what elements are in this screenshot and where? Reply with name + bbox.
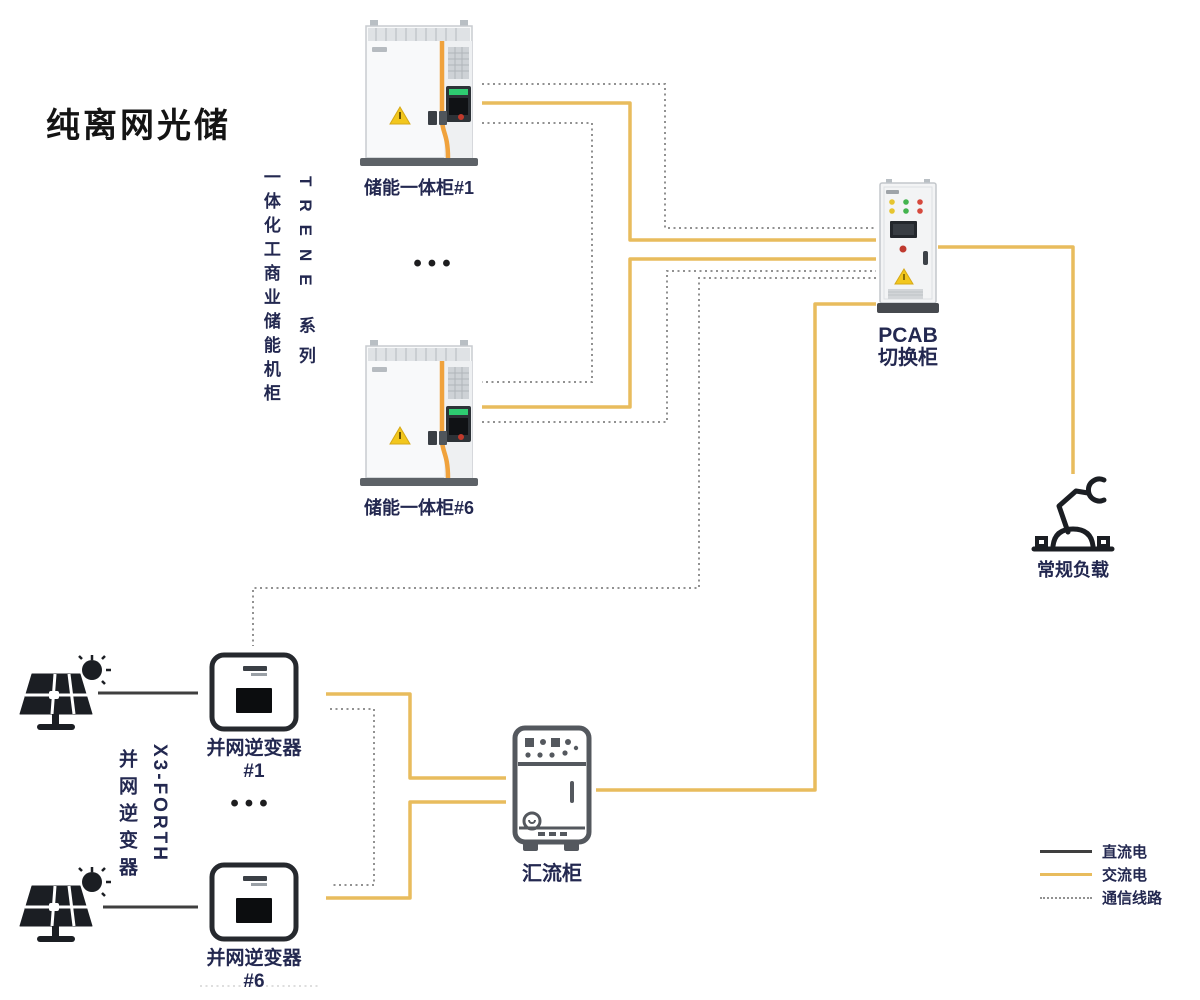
inverter-logo (243, 666, 267, 671)
comm-line-sample (1040, 897, 1092, 899)
combiner-label: 汇流柜 (510, 862, 594, 886)
legend-ac-label: 交流电 (1102, 864, 1147, 885)
storage-cabinet-6-icon (356, 336, 482, 488)
solar-panel-1-icon (16, 652, 112, 742)
storage-cabinet-6-label: 储能一体柜#6 (356, 498, 482, 520)
load-label: 常规负载 (1028, 560, 1118, 582)
legend-item-ac: 交流电 (1040, 863, 1162, 886)
inverter-6-label: 并网逆变器#6 (196, 948, 312, 994)
pcab-label-line2: 切换柜 (856, 347, 960, 370)
comm-line-cabinet1-to-cabinet6 (482, 123, 592, 382)
comm-line-inverter1-to-inverter6 (330, 709, 374, 885)
inverter-1-label: 并网逆变器#1 (196, 738, 312, 784)
storage-series-description-vertical: 一体化工商业储能机柜 (261, 168, 279, 408)
comm-line-pcab-to-inverter1 (253, 278, 876, 646)
pcab-label: PCAB 切换柜 (856, 324, 960, 370)
wiring-layer (0, 0, 1200, 1000)
storage-cabinet-1-icon (356, 16, 482, 168)
storage-cabinet-1-label: 储能一体柜#1 (356, 178, 482, 200)
legend-comm-label: 通信线路 (1102, 887, 1162, 908)
ac-line-sample (1040, 873, 1092, 876)
legend-item-comm: 通信线路 (1040, 886, 1162, 909)
ac-line-inverter6-to-combiner (326, 802, 506, 898)
storage-more-units-ellipsis: ••• (403, 250, 467, 278)
ac-line-inverter1-to-combiner (326, 694, 506, 778)
dc-line-sample (1040, 850, 1092, 853)
ac-line-cabinet6-to-pcab (482, 259, 876, 407)
solar-panel-2-icon (16, 864, 112, 954)
inverter-series-name-vertical: X3-FORTH (149, 744, 169, 863)
pcab-cabinet-icon (876, 177, 940, 315)
pv-more-units-ellipsis: ••• (220, 790, 284, 818)
ac-line-combiner-to-pcab (596, 304, 876, 790)
combiner-cabinet-icon (510, 724, 594, 856)
load-robot-arm-icon (1028, 472, 1118, 556)
inverter-logo (243, 876, 267, 881)
ac-line-cabinet1-to-pcab (482, 103, 876, 240)
page-title: 纯离网光储 (46, 98, 231, 147)
legend-dc-label: 直流电 (1102, 841, 1147, 862)
comm-line-cabinet1-to-pcab (482, 84, 876, 228)
legend: 直流电 交流电 通信线路 (1040, 840, 1162, 909)
inverter-1-icon (206, 650, 302, 734)
legend-item-dc: 直流电 (1040, 840, 1162, 863)
inverter-6-icon (206, 860, 302, 944)
comm-line-cabinet6-to-pcab (482, 271, 876, 422)
offgrid-pv-storage-diagram: 纯离网光储 TRENE 系列 一体化工商业储能机柜 X3-FORTH 并网逆变器 (0, 0, 1200, 1000)
inverter-series-description-vertical: 并网逆变器 (116, 749, 136, 884)
storage-series-name-vertical: TRENE 系列 (296, 176, 314, 376)
pcab-label-line1: PCAB (856, 324, 960, 347)
